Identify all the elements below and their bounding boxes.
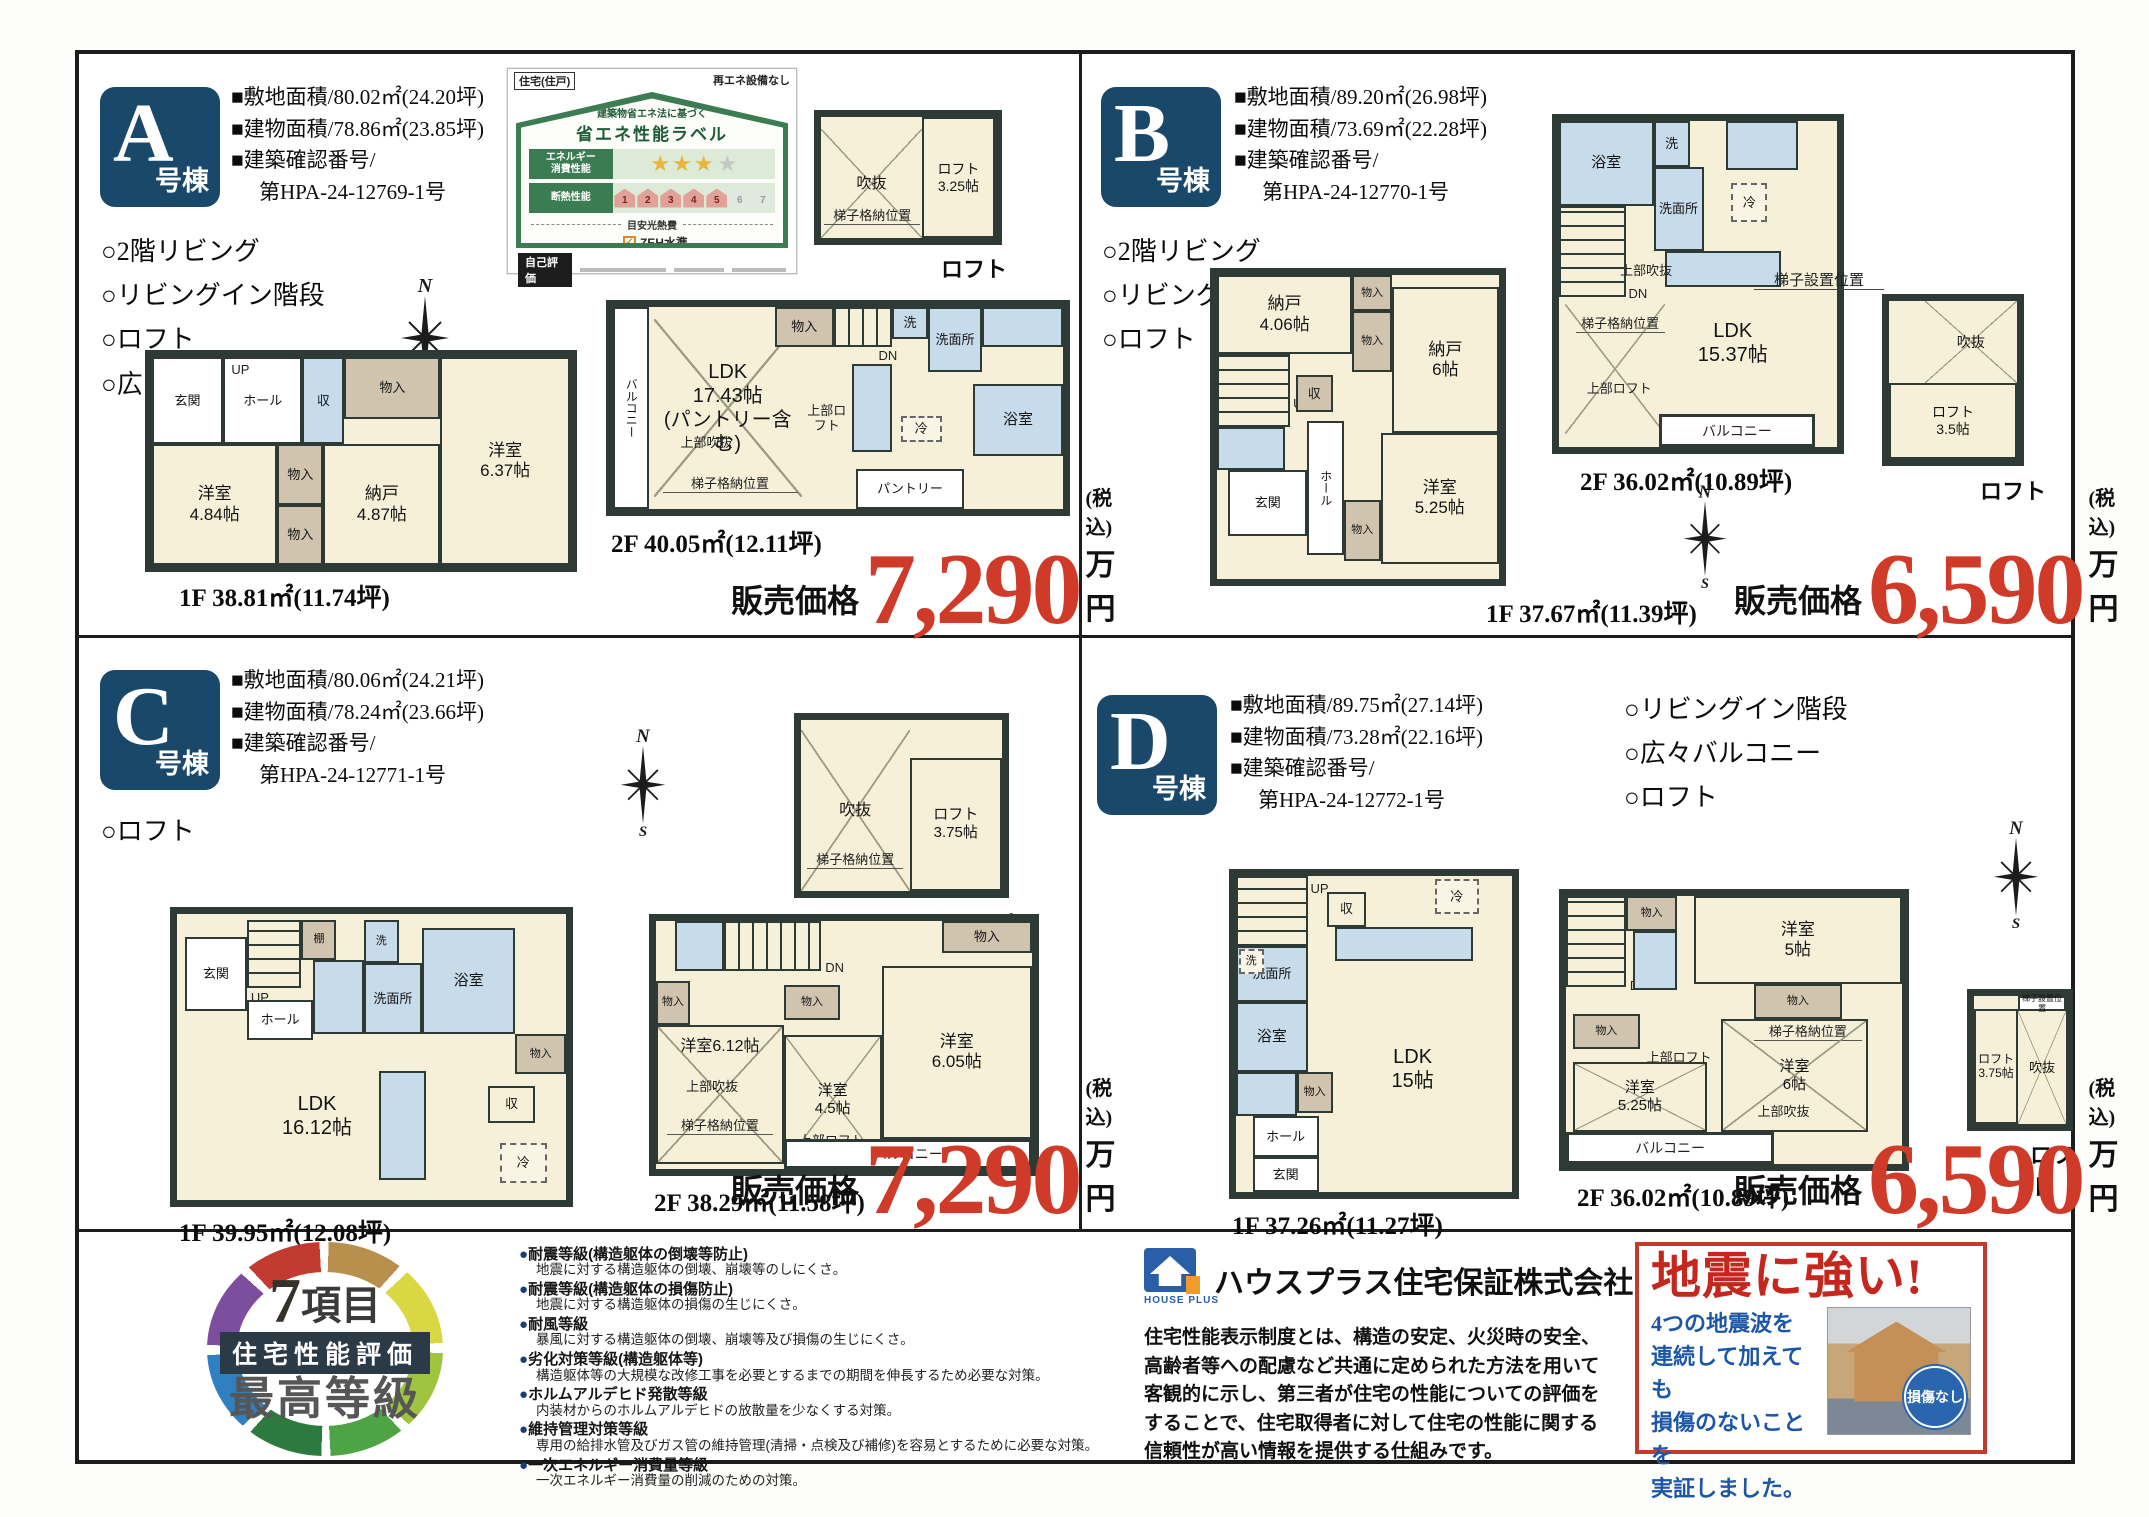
room-nando: 納戸 4.06帖 (1217, 275, 1352, 354)
room-washer: 洗 (1239, 949, 1264, 974)
plan-a-2f: バルコニー LDK 17.43帖 (パントリー含む) 上部吹抜 梯子格納位置 物… (606, 300, 1070, 516)
room-ldk: LDK 15帖 (1330, 977, 1496, 1160)
stairs-up-note: UP (1311, 882, 1329, 897)
void-above-note: 上部吹抜 (681, 436, 733, 451)
room-void: 吹抜 (2018, 1011, 2066, 1124)
energy-row-consumption: エネルギー 消費性能 ★★★ ★ (529, 149, 775, 179)
stairs (1566, 896, 1626, 987)
building-c-badge: C 号棟 (101, 671, 219, 789)
section-building-d: D 号棟 ■敷地面積/89.75㎡(27.14坪) ■建物面積/73.28㎡(2… (1082, 638, 2079, 1229)
room-void: 吹抜 (1925, 301, 2017, 383)
energy-performance-label: 住宅(住戸) 再エネ設備なし 建築物省エネ法に基づく 省エネ性能ラベル エネルギ… (507, 68, 797, 274)
energy-row1-label: エネルギー 消費性能 (529, 149, 613, 179)
houseplus-header: HOUSE PLUS ハウスプラス住宅保証株式会社 (1144, 1248, 1674, 1312)
spec-site-area: ■敷地面積/89.20㎡(26.98坪) (1234, 82, 1487, 114)
energy-housing-type: 住宅(住戸) (514, 72, 575, 90)
insulation-level-icon: 4 (683, 189, 704, 208)
price-label: 販売価格 (1734, 1166, 1862, 1222)
fineprint-bar (580, 268, 666, 272)
room-shelf: 棚 (301, 920, 336, 960)
price-tax-note: (税込) (2089, 482, 2119, 540)
spec-building-area: ■建物面積/73.28㎡(22.16坪) (1230, 722, 1483, 754)
stairs (1559, 206, 1626, 297)
spec-site-area: ■敷地面積/80.02㎡(24.20坪) (231, 82, 484, 114)
void-above-note: 上部吹抜 (1758, 1105, 1810, 1120)
ladder-set-note: 梯子設置位置 (1754, 272, 1884, 290)
dashed-line (531, 224, 621, 225)
quake-resistance-box: 地震に強い! 4つの地震波を 連続して加えても 損傷のないことを 実証しました。… (1635, 1242, 1987, 1454)
quake-title: 地震に強い! (1651, 1250, 1971, 1303)
loft-above-note: 上部ロフト (1587, 382, 1652, 397)
room-yoshitsu: 洋室 6.37帖 (440, 357, 570, 565)
flyer-frame: A 号棟 ■敷地面積/80.02㎡(24.20坪) ■建物面積/78.86㎡(2… (75, 50, 2075, 1464)
energy-renewable-none: 再エネ設備なし (713, 72, 790, 90)
room-wc (675, 921, 724, 971)
grade-desc: 地震に対する構造躯体の倒壊、崩壊等のしにくさ。 (519, 1263, 1209, 1278)
plan-b-1f-caption: 1F 37.67㎡(11.39坪) (1486, 594, 1697, 630)
plan-a-loft-caption: ロフト (941, 252, 1007, 284)
room-closet: 物入 (775, 307, 834, 347)
compass-south-label: S (639, 824, 647, 838)
fridge-space: 冷 (1435, 879, 1479, 914)
performance-grades-list: ●耐震等級(構造躯体の倒壊等防止) 地震に対する構造躯体の倒壊、崩壊等のしにくさ… (519, 1246, 1209, 1492)
room-balcony: バルコニー (1659, 414, 1815, 447)
room-closet: 物入 (277, 444, 323, 504)
section-building-c: C 号棟 ■敷地面積/80.06㎡(24.21坪) ■建物面積/78.24㎡(2… (79, 638, 1079, 1229)
building-d-badge: D 号棟 (1098, 696, 1216, 814)
spec-site-area: ■敷地面積/80.06㎡(24.21坪) (231, 665, 484, 697)
room-closet: 物入 (344, 357, 440, 419)
spec-confirm-no: ■建築確認番号/ (1230, 753, 1483, 785)
grade-desc: 内装材からのホルムアルデヒドの放散量を少なくする対策。 (519, 1404, 1209, 1419)
building-b-suffix: 号棟 (1156, 159, 1210, 198)
fridge-space: 冷 (1731, 183, 1767, 222)
room-yoshitsu: 洋室 5.25帖 (1381, 433, 1499, 564)
houseplus-description: 住宅性能表示制度とは、構造の安定、火災時の安全、 高齢者等への配慮など共通に定め… (1144, 1324, 1674, 1467)
self-evaluation-badge: 自己評価 (518, 253, 572, 287)
room-closet: 物入 (1573, 1014, 1640, 1049)
compass-icon: N S (617, 726, 669, 838)
room-pantry: パントリー (856, 469, 964, 509)
room-genkan: 玄関 (185, 937, 247, 1011)
grade-desc: 地震に対する構造躯体の損傷の生じにくさ。 (519, 1298, 1209, 1313)
room-yoshitsu: 洋室 5帖 (1694, 896, 1902, 984)
building-c-features: ○ロフト (101, 810, 195, 854)
spec-building-area: ■建物面積/78.86㎡(23.85坪) (231, 114, 484, 146)
grade-item: ●耐風等級 暴風に対する構造躯体の倒壊、崩壊等及び損傷の生じにくさ。 (519, 1316, 1209, 1348)
quake-content-row: 4つの地震波を 連続して加えても 損傷のないことを 実証しました。 損傷なし (1651, 1307, 1971, 1505)
houseplus-logo-icon: HOUSE PLUS (1144, 1248, 1202, 1312)
building-d-suffix: 号棟 (1152, 767, 1206, 806)
grade-title: ●耐震等級(構造躯体の倒壊等防止) (519, 1246, 1209, 1263)
fridge-space: 冷 (500, 1143, 547, 1183)
building-a-badge: A 号棟 (101, 88, 219, 206)
price-label: 販売価格 (731, 1166, 859, 1222)
plan-b-1f: 納戸 4.06帖 物入 物入 納戸 6帖 UP 収 玄関 ホール 物入 洋室 5… (1210, 268, 1506, 586)
room-balcony: バルコニー (613, 307, 649, 509)
insulation-level-icon: 1 (614, 189, 635, 208)
energy-row2-label: 断熱性能 (529, 183, 613, 213)
spec-confirm-no2: 第HPA-24-12770-1号 (1234, 177, 1487, 209)
energy-title: 省エネ性能ラベル (521, 120, 783, 145)
kitchen-counter (852, 364, 893, 453)
loft-above-note: 上部ロフト (802, 404, 852, 434)
room-hall: ホール (1307, 421, 1344, 555)
spec-confirm-no2: 第HPA-24-12771-1号 (231, 760, 484, 792)
insulation-level-icon: 6 (729, 189, 750, 208)
grade-desc: 暴風に対する構造躯体の倒壊、崩壊等及び損傷の生じにくさ。 (519, 1333, 1209, 1348)
room-closet: 物入 (1344, 500, 1381, 561)
section-building-b: B 号棟 ■敷地面積/89.20㎡(26.98坪) ■建物面積/73.69㎡(2… (1082, 54, 2079, 635)
feature: ○2階リビング (101, 230, 325, 274)
stairs (724, 921, 822, 971)
compass-north-label: N (635, 726, 650, 747)
room-storage: 収 (302, 357, 344, 444)
stairs-down-note: DN (1629, 287, 1648, 302)
grade-title: ●劣化対策等級(構造躯体等) (519, 1351, 1209, 1368)
section-building-a: A 号棟 ■敷地面積/80.02㎡(24.20坪) ■建物面積/78.86㎡(2… (79, 54, 1079, 635)
ladder-storage-note: 梯子格納位置 (667, 1119, 772, 1135)
feature: ○リビングイン階段 (1624, 688, 1848, 732)
grade-desc: 専用の給排水管及びガス管の維持管理(清掃・点検及び補修)を容易とするために必要な… (519, 1439, 1209, 1454)
room-hall: ホール (1253, 1116, 1319, 1157)
compass-south-label: S (1701, 576, 1709, 590)
grade-desc: 一次エネルギー消費量の削減のための対策。 (519, 1474, 1209, 1489)
kitchen-counter (1335, 927, 1473, 962)
room-bath: 浴室 (1559, 121, 1654, 206)
building-b-badge: B 号棟 (1102, 88, 1220, 206)
fridge-space: 冷 (901, 416, 942, 442)
no-damage-badge: 損傷なし (1904, 1366, 1966, 1428)
building-d-specs: ■敷地面積/89.75㎡(27.14坪) ■建物面積/73.28㎡(22.16坪… (1230, 690, 1483, 816)
plan-c-loft: 吹抜 梯子格納位置 ロフト 3.75帖 (794, 713, 1009, 898)
room-senmenjo: 洗面所 (928, 307, 982, 372)
fineprint-bar (674, 268, 724, 272)
energy-house-inner: 建築物省エネ法に基づく 省エネ性能ラベル エネルギー 消費性能 ★★★ ★ 断熱… (521, 97, 783, 243)
room-wc (313, 960, 364, 1034)
spec-confirm-no2: 第HPA-24-12772-1号 (1230, 785, 1483, 817)
ring-grade-label: 最高等級 (229, 1374, 421, 1426)
compass-north-label: N (2008, 818, 2023, 839)
compass-north-label: N (1698, 482, 1713, 502)
houseplus-logo-text: HOUSE PLUS (1144, 1295, 1219, 1306)
stairs-down-note: DN (879, 349, 898, 364)
spec-site-area: ■敷地面積/89.75㎡(27.14坪) (1230, 690, 1483, 722)
ring-number: 7 (269, 1272, 301, 1330)
grade-title: ●耐風等級 (519, 1316, 1209, 1333)
room-senmenjo: 洗面所 (364, 963, 422, 1035)
plan-c-1f: 玄関 UP ホール 棚 洗 洗面所 浴室 LDK 16.12帖 物入 収 冷 (170, 907, 573, 1207)
feature: ○広々バルコニー (1624, 732, 1848, 776)
spec-confirm-no: ■建築確認番号/ (1234, 145, 1487, 177)
room-loft: ロフト 3.75帖 (1974, 1009, 2018, 1124)
room-genkan: 玄関 (152, 357, 223, 444)
room-wc (982, 307, 1063, 347)
insulation-level-icon: 3 (660, 189, 681, 208)
room-closet: 物入 (942, 921, 1032, 953)
room-hall: ホール (247, 1000, 313, 1040)
room-washer: 洗 (364, 920, 399, 963)
ladder-storage-note: 梯子格納位置 (807, 853, 903, 869)
compass-north-label: N (417, 276, 434, 297)
room-wc (1217, 427, 1285, 470)
room-closet: 物入 (1626, 896, 1676, 931)
building-c-specs: ■敷地面積/80.06㎡(24.21坪) ■建物面積/78.24㎡(23.66坪… (231, 665, 484, 791)
plan-a-1f: 玄関 ホール UP 収 物入 洋室 4.84帖 物入 物入 納戸 4.87帖 洋… (145, 350, 577, 572)
spec-confirm-no2: 第HPA-24-12769-1号 (231, 177, 484, 209)
energy-house-shape: 建築物省エネ法に基づく 省エネ性能ラベル エネルギー 消費性能 ★★★ ★ 断熱… (516, 92, 788, 248)
building-b-specs: ■敷地面積/89.20㎡(26.98坪) ■建物面積/73.69㎡(22.28坪… (1234, 82, 1487, 208)
price-c: 販売価格 7,290 (税込) 万円 (731, 1136, 1116, 1222)
insulation-level-icon: 7 (752, 189, 773, 208)
void-above-note: 上部吹抜 (686, 1080, 738, 1095)
price-value: 7,290 (865, 548, 1080, 632)
ladder-set-note: 梯子設置位置 (2018, 996, 2066, 1011)
insulation-level-icon: 2 (637, 189, 658, 208)
room-genkan: 玄関 (1253, 1157, 1319, 1192)
room-wc (1236, 1072, 1297, 1116)
stairs (1236, 876, 1308, 946)
room-closet: 物入 (277, 505, 323, 565)
zeh-label: ZEH水準 (640, 234, 688, 251)
plan-d-1f: UP 収 冷 洗面所 洗 浴室 物入 ホール 玄関 LDK 15帖 (1229, 869, 1519, 1199)
room-senmenjo: 洗面所 (1654, 167, 1704, 252)
room-wc (1726, 121, 1798, 170)
energy-cost-divider: 目安光熱費 (531, 217, 773, 232)
kitchen-counter (379, 1071, 426, 1180)
logo-orange-block (1186, 1276, 1200, 1294)
grade-title: ●ホルムアルデヒド発散等級 (519, 1386, 1209, 1403)
flyer-page: A 号棟 ■敷地面積/80.02㎡(24.20坪) ■建物面積/78.86㎡(2… (0, 0, 2149, 1517)
zeh-check-icon: ✓ (623, 236, 636, 249)
price-a: 販売価格 7,290 (税込) 万円 (731, 546, 1116, 632)
insulation-level-icon: 5 (706, 189, 727, 208)
room-bath: 浴室 (422, 928, 515, 1034)
compass-icon: N S (1680, 482, 1730, 590)
fineprint-bar (732, 268, 786, 272)
room-nando: 納戸 6帖 (1392, 287, 1499, 433)
feature: ○ロフト (101, 810, 195, 854)
grade-item: ●維持管理対策等級 専用の給排水管及びガス管の維持管理(清掃・点検及び補修)を容… (519, 1421, 1209, 1453)
plan-a-loft: 吹抜 梯子格納位置 ロフト 3.25帖 (814, 110, 1002, 245)
ladder-storage-note: 梯子格納位置 (824, 209, 920, 225)
grade-item: ●耐震等級(構造躯体の倒壊等防止) 地震に対する構造躯体の倒壊、崩壊等のしにくさ… (519, 1246, 1209, 1278)
room-washer: 洗 (1654, 121, 1690, 167)
energy-footer: 自己評価 (518, 253, 786, 287)
grade-item: ●ホルムアルデヒド発散等級 内装材からのホルムアルデヒドの放散量を少なくする対策… (519, 1386, 1209, 1418)
energy-row-insulation: 断熱性能 1 2 3 4 5 6 7 (529, 183, 775, 213)
stairs (834, 307, 893, 347)
price-label: 販売価格 (1734, 576, 1862, 632)
performance-ring-badge: 7 項目 住宅性能評価 最高等級 (207, 1242, 443, 1456)
room-closet: 物入 (784, 985, 840, 1020)
room-loft: ロフト 3.25帖 (922, 117, 995, 238)
grade-title: ●耐震等級(構造躯体の損傷防止) (519, 1281, 1209, 1298)
void-above-note: 上部吹抜 (1620, 264, 1672, 279)
building-a-specs: ■敷地面積/80.02㎡(24.20坪) ■建物面積/78.86㎡(23.85坪… (231, 82, 484, 208)
grade-item: ●劣化対策等級(構造躯体等) 構造躯体等の大規模な改修工事を必要とするまでの期間… (519, 1351, 1209, 1383)
room-storage: 収 (488, 1086, 535, 1123)
price-value: 6,590 (1868, 1138, 2083, 1222)
room-ldk: LDK 15.37帖 (1670, 297, 1795, 388)
stairs-up-note: UP (231, 363, 249, 378)
spec-confirm-no: ■建築確認番号/ (231, 145, 484, 177)
plan-b-loft-caption: ロフト (1980, 474, 2046, 506)
energy-row2-levels: 1 2 3 4 5 6 7 (613, 183, 775, 213)
building-c-suffix: 号棟 (155, 742, 209, 781)
price-label: 販売価格 (731, 576, 859, 632)
room-closet: 物入 (1352, 311, 1391, 372)
price-unit: 万円 (2089, 1130, 2119, 1218)
price-b: 販売価格 6,590 (税込) 万円 (1734, 546, 2119, 632)
ring-number-unit: 項目 (301, 1286, 381, 1330)
room-closet: 物入 (656, 981, 690, 1026)
ring-band-label: 住宅性能評価 (220, 1332, 430, 1374)
spec-building-area: ■建物面積/78.24㎡(23.66坪) (231, 697, 484, 729)
stairs (1217, 354, 1290, 427)
plan-d-loft: ロフト 3.75帖 梯子設置位置 吹抜 (1967, 989, 2073, 1131)
ladder-storage-note: 梯子格納位置 (663, 477, 798, 493)
room-bath: 浴室 (973, 384, 1063, 457)
price-tax-note: (税込) (2089, 1072, 2119, 1130)
quake-test-photo: 損傷なし (1827, 1307, 1971, 1435)
plan-a-1f-caption: 1F 38.81㎡(11.74坪) (179, 578, 390, 614)
houseplus-block: HOUSE PLUS ハウスプラス住宅保証株式会社 住宅性能表示制度とは、構造の… (1144, 1248, 1674, 1467)
star-rating-gold-icon: ★★★ (650, 151, 715, 177)
ladder-storage-note: 梯子格納位置 (1576, 317, 1665, 333)
room-closet: 物入 (1297, 1072, 1333, 1113)
room-yoshitsu: 洋室 5.25帖 (1573, 1062, 1707, 1132)
price-value: 7,290 (865, 1138, 1080, 1222)
price-value: 6,590 (1868, 548, 2083, 632)
room-genkan: 玄関 (1228, 470, 1307, 537)
grade-item: ●一次エネルギー消費量等級 一次エネルギー消費量の削減のための対策。 (519, 1457, 1209, 1489)
stairs-down-note: DN (825, 961, 844, 976)
bottom-strip: 7 項目 住宅性能評価 最高等級 ●耐震等級(構造躯体の倒壊等防止) 地震に対す… (79, 1232, 2079, 1464)
room-yoshitsu: 洋室 6.05帖 (882, 966, 1032, 1140)
room-yoshitsu: 洋室 4.84帖 (152, 444, 277, 565)
stairs (247, 920, 301, 989)
spec-building-area: ■建物面積/73.69㎡(22.28坪) (1234, 114, 1487, 146)
grade-title: ●一次エネルギー消費量等級 (519, 1457, 1209, 1474)
room-wc (1633, 931, 1677, 990)
room-closet: 物入 (1754, 984, 1841, 1019)
room-storage: 収 (1296, 375, 1333, 411)
energy-cost-label: 目安光熱費 (621, 217, 683, 232)
star-rating-gray-icon: ★ (718, 151, 738, 177)
room-loft: ロフト 3.5帖 (1889, 383, 2017, 459)
room-nando: 納戸 4.87帖 (323, 444, 440, 565)
plan-b-loft: 吹抜 ロフト 3.5帖 (1882, 294, 2024, 466)
feature: ○リビングイン階段 (101, 274, 325, 318)
energy-label-header: 住宅(住戸) 再エネ設備なし (508, 69, 796, 91)
grade-title: ●維持管理対策等級 (519, 1421, 1209, 1438)
building-d-features: ○リビングイン階段 ○広々バルコニー ○ロフト (1624, 688, 1848, 821)
grade-item: ●耐震等級(構造躯体の損傷防止) 地震に対する構造躯体の損傷の生じにくさ。 (519, 1281, 1209, 1313)
feature: ○ロフト (1624, 776, 1848, 820)
houseplus-company-name: ハウスプラス住宅保証株式会社 (1214, 1258, 1633, 1302)
room-storage: 収 (1327, 892, 1366, 927)
room-closet: 物入 (1352, 275, 1391, 311)
compass-south-label: S (2012, 916, 2020, 930)
grade-desc: 構造躯体等の大規模な改修工事を必要とするまでの期間を伸長するため必要な対策。 (519, 1369, 1209, 1384)
dashed-line (683, 224, 773, 225)
energy-subtitle: 建築物省エネ法に基づく (521, 105, 783, 120)
spec-confirm-no: ■建築確認番号/ (231, 728, 484, 760)
building-a-suffix: 号棟 (155, 159, 209, 198)
room-closet: 物入 (515, 1034, 566, 1074)
room-washer: 洗 (892, 307, 928, 339)
room-loft: ロフト 3.75帖 (910, 758, 1002, 891)
price-unit: 万円 (2089, 540, 2119, 628)
room-bath: 浴室 (1236, 1002, 1308, 1072)
price-d: 販売価格 6,590 (税込) 万円 (1734, 1136, 2119, 1222)
compass-icon: N S (1990, 818, 2042, 930)
ring-content: 7 項目 住宅性能評価 最高等級 (220, 1272, 430, 1425)
energy-row1-stars: ★★★ ★ (613, 149, 775, 179)
plan-d-2f: DN 物入 洋室 5帖 物入 梯子格納位置 物入 上部ロフト 洋室 5.25帖 … (1559, 889, 1909, 1171)
quake-body-text: 4つの地震波を 連続して加えても 損傷のないことを 実証しました。 (1651, 1307, 1819, 1505)
